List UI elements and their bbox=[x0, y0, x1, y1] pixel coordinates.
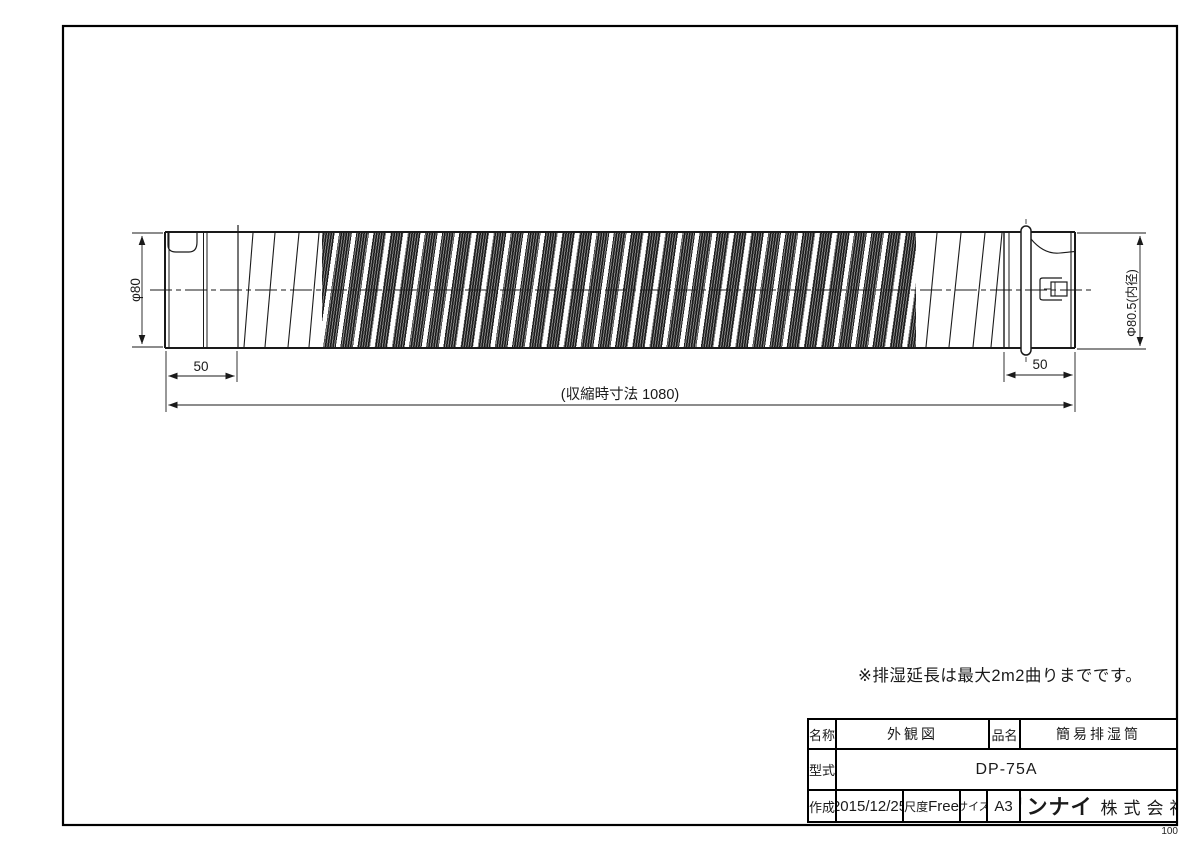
scale-cell: 尺度Free bbox=[904, 791, 961, 821]
company-cell: リンナイ 株式会社 bbox=[1021, 791, 1176, 821]
dim-overall-label: (収縮時寸法 1080) bbox=[561, 386, 679, 403]
title-block-row-name: 名称 外観図 品名 簡易排湿筒 bbox=[809, 720, 1176, 750]
created-value: 2015/12/25 bbox=[837, 791, 904, 821]
drawing-sheet: φ80 50 50 (収縮時寸法 1080) Φ80.5(内径) ※排湿延長は最… bbox=[0, 0, 1200, 849]
scale-label: 尺度 bbox=[904, 798, 928, 815]
model-label: 型式 bbox=[809, 750, 837, 789]
dim-overall bbox=[169, 352, 1076, 412]
size-label: サイズ bbox=[961, 791, 988, 821]
title-block: 名称 外観図 品名 簡易排湿筒 型式 DP-75A 作成 2015/12/25 … bbox=[807, 718, 1178, 823]
name-value: 外観図 bbox=[837, 720, 990, 748]
title-block-row-meta: 作成 2015/12/25 尺度Free サイズ A3 リンナイ 株式会社 bbox=[809, 791, 1176, 821]
dim-diameter-right-label: Φ80.5(内径) bbox=[1125, 269, 1139, 337]
right-fitting-pin bbox=[1021, 226, 1031, 355]
name-label: 名称 bbox=[809, 720, 837, 748]
dim-left-end-label: 50 bbox=[193, 359, 208, 374]
company-brand: リンナイ bbox=[1021, 791, 1093, 821]
dim-diameter-left-label: φ80 bbox=[128, 278, 143, 302]
product-label: 品名 bbox=[990, 720, 1021, 748]
model-value: DP-75A bbox=[837, 750, 1176, 789]
created-label: 作成 bbox=[809, 791, 837, 821]
title-block-row-model: 型式 DP-75A bbox=[809, 750, 1176, 791]
scale-value: Free bbox=[928, 798, 959, 815]
sheet-number: 100 bbox=[1152, 826, 1178, 837]
size-value: A3 bbox=[988, 791, 1021, 821]
company-suffix: 株式会社 bbox=[1101, 794, 1177, 819]
right-fitting-seam-curve bbox=[1031, 239, 1075, 253]
dim-right-end-label: 50 bbox=[1032, 357, 1047, 372]
latch-clip bbox=[1040, 278, 1067, 300]
note-text: ※排湿延長は最大2m2曲りまでです。 bbox=[858, 666, 1142, 685]
left-fitting-notch bbox=[168, 233, 197, 252]
sheet-border bbox=[63, 26, 1177, 825]
hose-outline bbox=[150, 219, 1092, 362]
product-value: 簡易排湿筒 bbox=[1021, 720, 1176, 748]
